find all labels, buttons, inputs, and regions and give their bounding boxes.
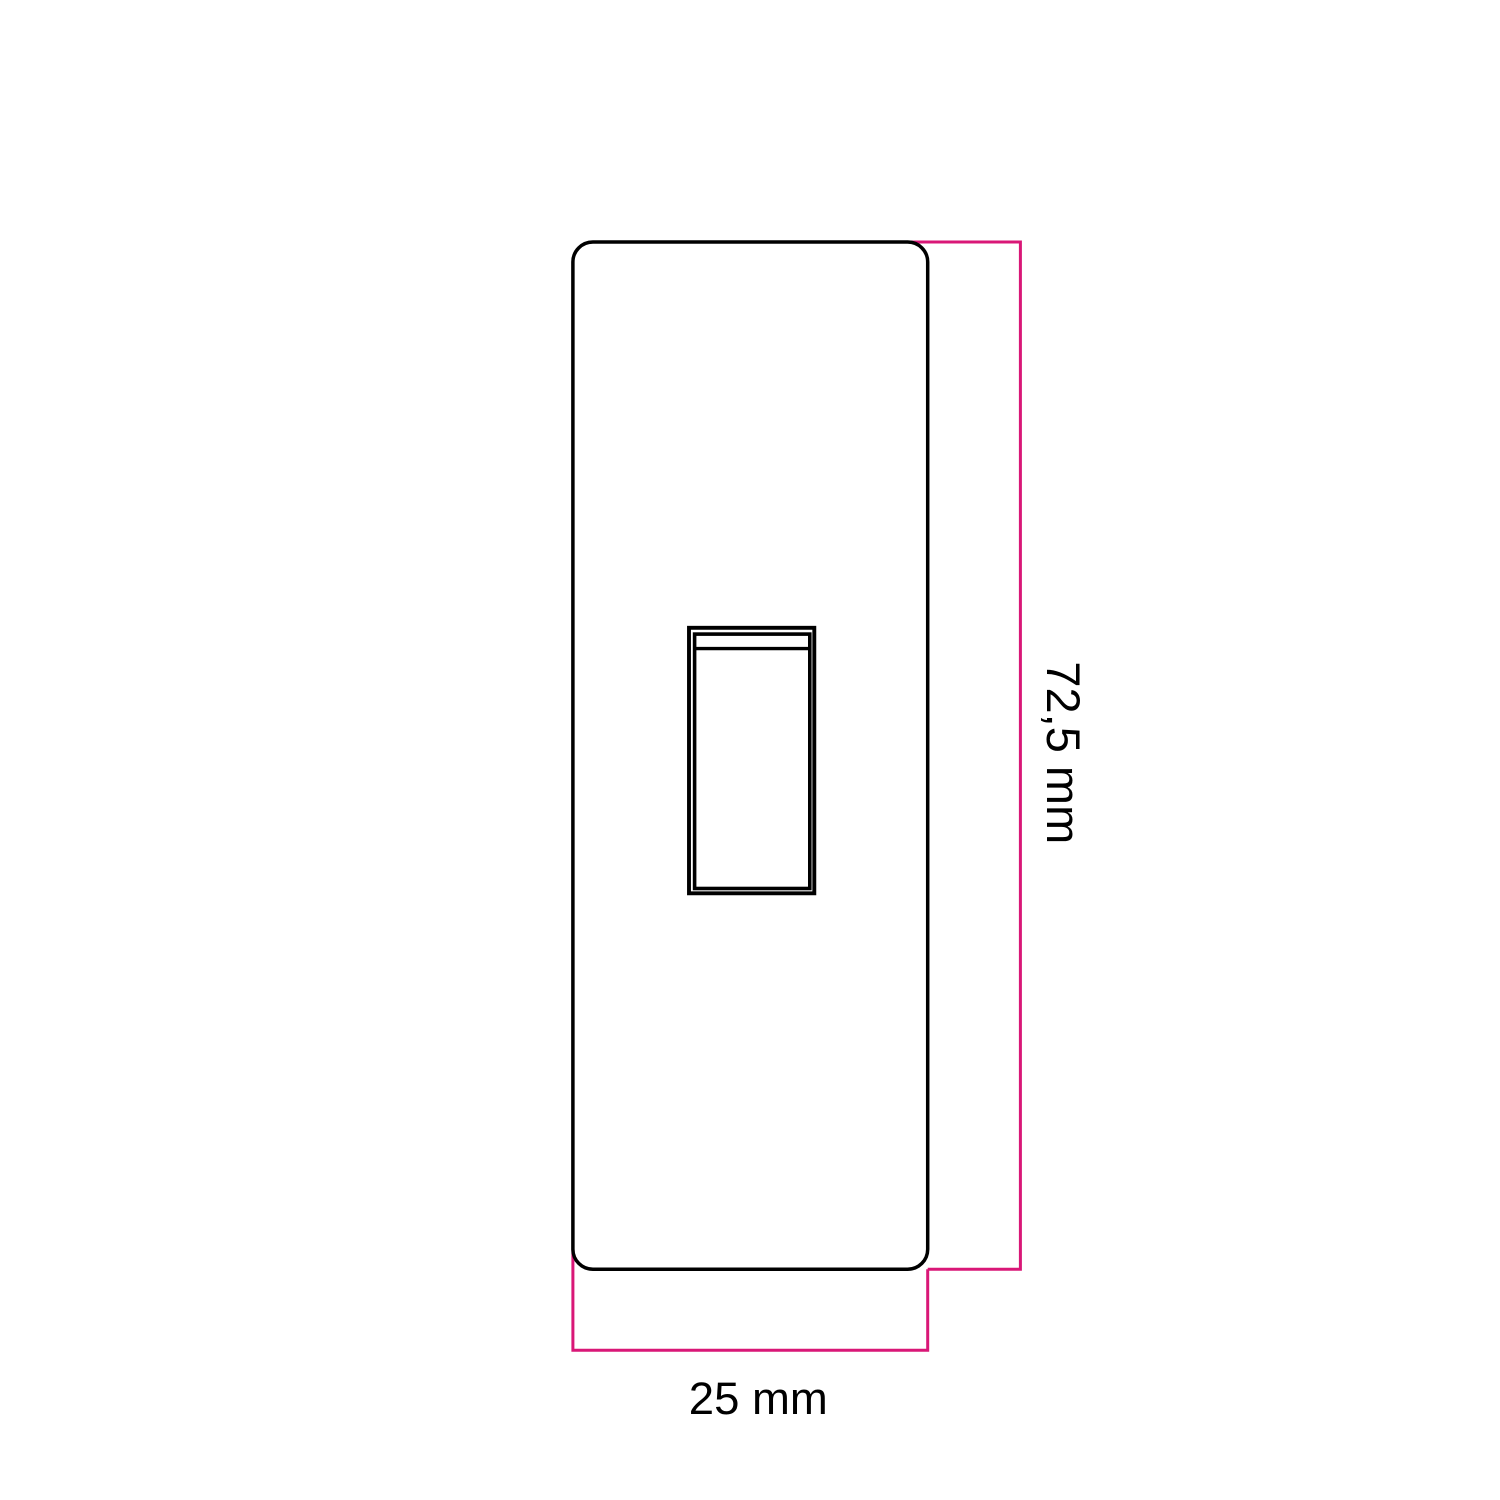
svg-text:25 mm: 25 mm [689,1373,828,1424]
svg-text:72,5 mm: 72,5 mm [1037,661,1090,844]
